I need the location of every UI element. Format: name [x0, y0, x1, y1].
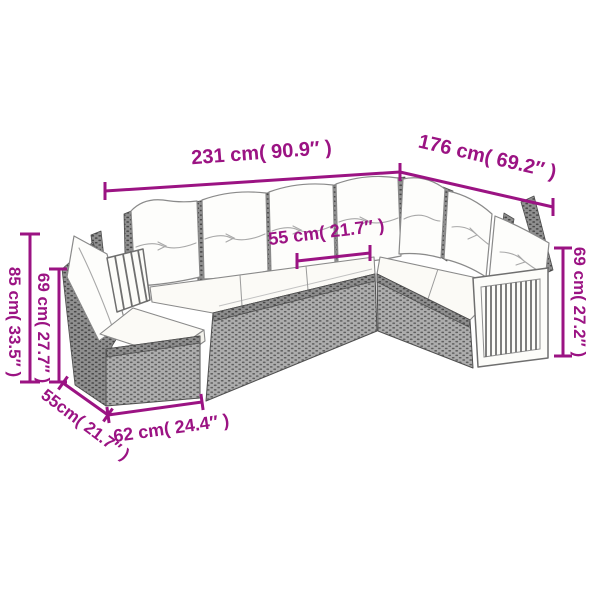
dimension-tick — [107, 407, 109, 423]
dim-back-height: 69 cm( 27.7″ ) — [34, 269, 67, 383]
dim-label-side-depth: 176 cm( 69.2″ ) — [416, 131, 558, 184]
dimension-tick — [201, 394, 203, 410]
right-armrest — [473, 268, 548, 367]
back-cushion — [444, 191, 492, 277]
dim-label-armrest-height: 69 cm( 27.2″ ) — [570, 247, 589, 357]
dim-label-module-width: 62 cm( 24.4″ ) — [112, 410, 230, 446]
back-cushion — [202, 192, 268, 279]
sofa-dimension-diagram: 231 cm( 90.9″ ) 176 cm( 69.2″ ) 55 cm( 2… — [0, 0, 600, 600]
dim-label-total-height: 85 cm( 33.5″ ) — [5, 267, 24, 377]
dim-label-top-width: 231 cm( 90.9″ ) — [191, 137, 333, 169]
dimension-diagram-page: 231 cm( 90.9″ ) 176 cm( 69.2″ ) 55 cm( 2… — [0, 0, 600, 600]
sofa-illustration — [62, 176, 553, 406]
dim-armrest-height: 69 cm( 27.2″ ) — [554, 247, 589, 357]
dim-label-back-height: 69 cm( 27.7″ ) — [34, 273, 53, 383]
